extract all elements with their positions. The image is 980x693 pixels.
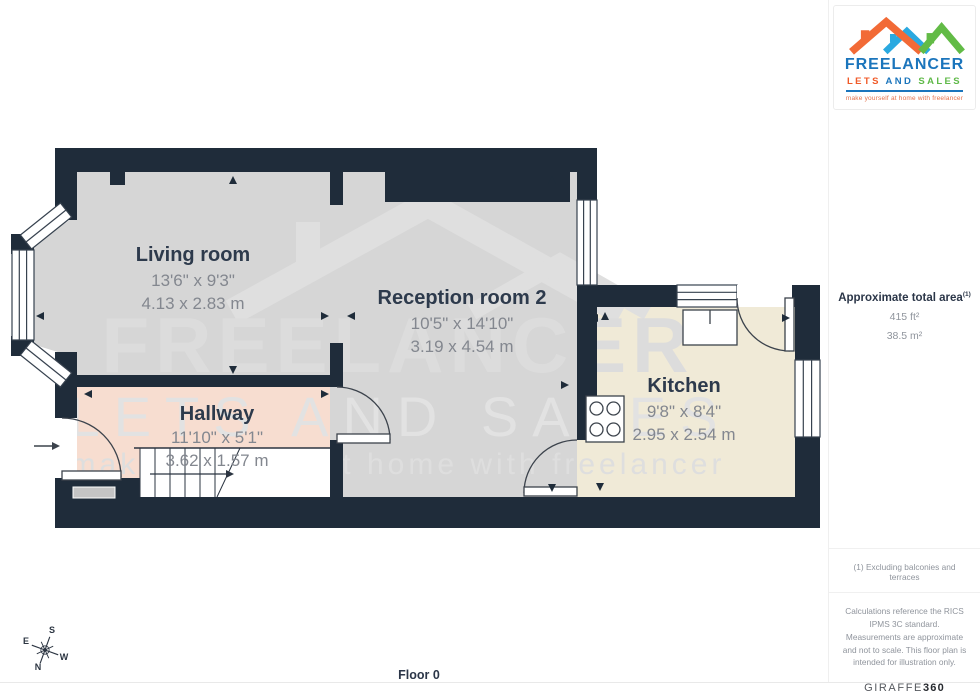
total-area-m: 38.5 m²: [829, 330, 980, 342]
floor-plan-area: FREELANCER LETS AND SALES make yourself …: [0, 0, 828, 693]
compass-icon: S E W N: [23, 625, 69, 672]
window-pane: [577, 200, 597, 285]
hob-icon: [586, 396, 624, 442]
wall-segment: [55, 497, 820, 528]
brand-word-sales: SALES: [918, 76, 962, 87]
wall-segment: [55, 375, 343, 387]
sink-icon: [683, 310, 737, 345]
entrance-step: [73, 487, 115, 498]
hob-body: [586, 396, 624, 442]
provider-suffix: 360: [923, 682, 945, 693]
compass-north: N: [35, 662, 42, 672]
room-dims-m-hallway: 3.62 x 1.57 m: [165, 451, 268, 470]
front-door-opening: [55, 418, 77, 478]
wall-segment: [577, 285, 677, 307]
total-area-title-text: Approximate total area: [838, 292, 963, 304]
room-dims-ft-kitchen: 9'8" x 8'4": [647, 402, 721, 421]
kitchen-right-window: [795, 360, 820, 437]
disclaimer-text: Calculations reference the RICS IPMS 3C …: [842, 605, 967, 669]
room-dims-ft-reception-room-2: 10'5" x 14'10": [411, 314, 514, 333]
page-bottom-divider: [0, 682, 980, 683]
brand-divider: [846, 90, 963, 92]
wall-segment: [330, 440, 343, 497]
watermark-chimney-icon: [296, 222, 320, 266]
brand-subtitle: LETS AND SALES: [837, 76, 972, 87]
reception-window: [577, 200, 597, 285]
wall-segment: [795, 437, 820, 528]
brand-logo-card: FREELANCER LETS AND SALES make yourself …: [833, 5, 976, 110]
compass-south: S: [49, 625, 55, 635]
door-leaf: [337, 434, 390, 443]
room-dims-m-living-room: 4.13 x 2.83 m: [141, 294, 244, 313]
sidebar: FREELANCER LETS AND SALES make yourself …: [828, 0, 980, 682]
room-label-reception-room-2: Reception room 2: [378, 287, 547, 309]
total-area-title: Approximate total area(1): [829, 291, 980, 304]
brand-tagline: make yourself at home with freelancer: [837, 95, 972, 102]
compass-west: W: [60, 652, 69, 662]
door-leaf: [785, 298, 794, 351]
room-dims-ft-living-room: 13'6" x 9'3": [151, 271, 235, 290]
brand-roofs-icon: [844, 13, 966, 55]
footnote: (1) Excluding balconies and terraces: [829, 548, 980, 582]
chimney-breast: [385, 172, 570, 202]
compass-east: E: [23, 636, 29, 646]
wall-segment: [577, 148, 597, 200]
total-area-ft: 415 ft²: [829, 311, 980, 323]
kitchen-top-window: [677, 285, 737, 307]
back-door-opening: [737, 285, 792, 307]
total-area-block: Approximate total area(1) 415 ft² 38.5 m…: [829, 291, 980, 342]
door-leaf: [62, 471, 121, 480]
brand-name: FREELANCER: [837, 56, 972, 74]
compass-center: [43, 648, 47, 652]
window-pane: [677, 285, 737, 307]
room-label-kitchen: Kitchen: [647, 375, 720, 397]
room-dims-ft-hallway: 11'10" x 5'1": [171, 428, 263, 447]
disclaimer-block: Calculations reference the RICS IPMS 3C …: [829, 592, 980, 693]
room-dims-m-reception-room-2: 3.19 x 4.54 m: [410, 337, 513, 356]
wall-segment: [110, 172, 125, 185]
brand-word-lets: LETS: [847, 76, 881, 87]
floor-label: Floor 0: [398, 668, 440, 682]
room-label-living-room: Living room: [136, 244, 250, 266]
provider-name: GIRAFFE: [864, 682, 923, 693]
wall-segment: [330, 172, 343, 205]
room-label-hallway: Hallway: [180, 403, 255, 425]
room-dims-m-kitchen: 2.95 x 2.54 m: [632, 425, 735, 444]
total-area-footnote-ref: (1): [963, 291, 971, 298]
bay-window-center-pane: [12, 250, 34, 340]
wall-segment: [795, 285, 820, 360]
floor-plan-page: FREELANCER LETS AND SALES make yourself …: [0, 0, 980, 693]
floor-plan-svg: FREELANCER LETS AND SALES make yourself …: [0, 0, 828, 693]
wall-segment: [55, 148, 597, 172]
window-pane: [795, 360, 820, 437]
brand-word-and: AND: [886, 76, 914, 87]
